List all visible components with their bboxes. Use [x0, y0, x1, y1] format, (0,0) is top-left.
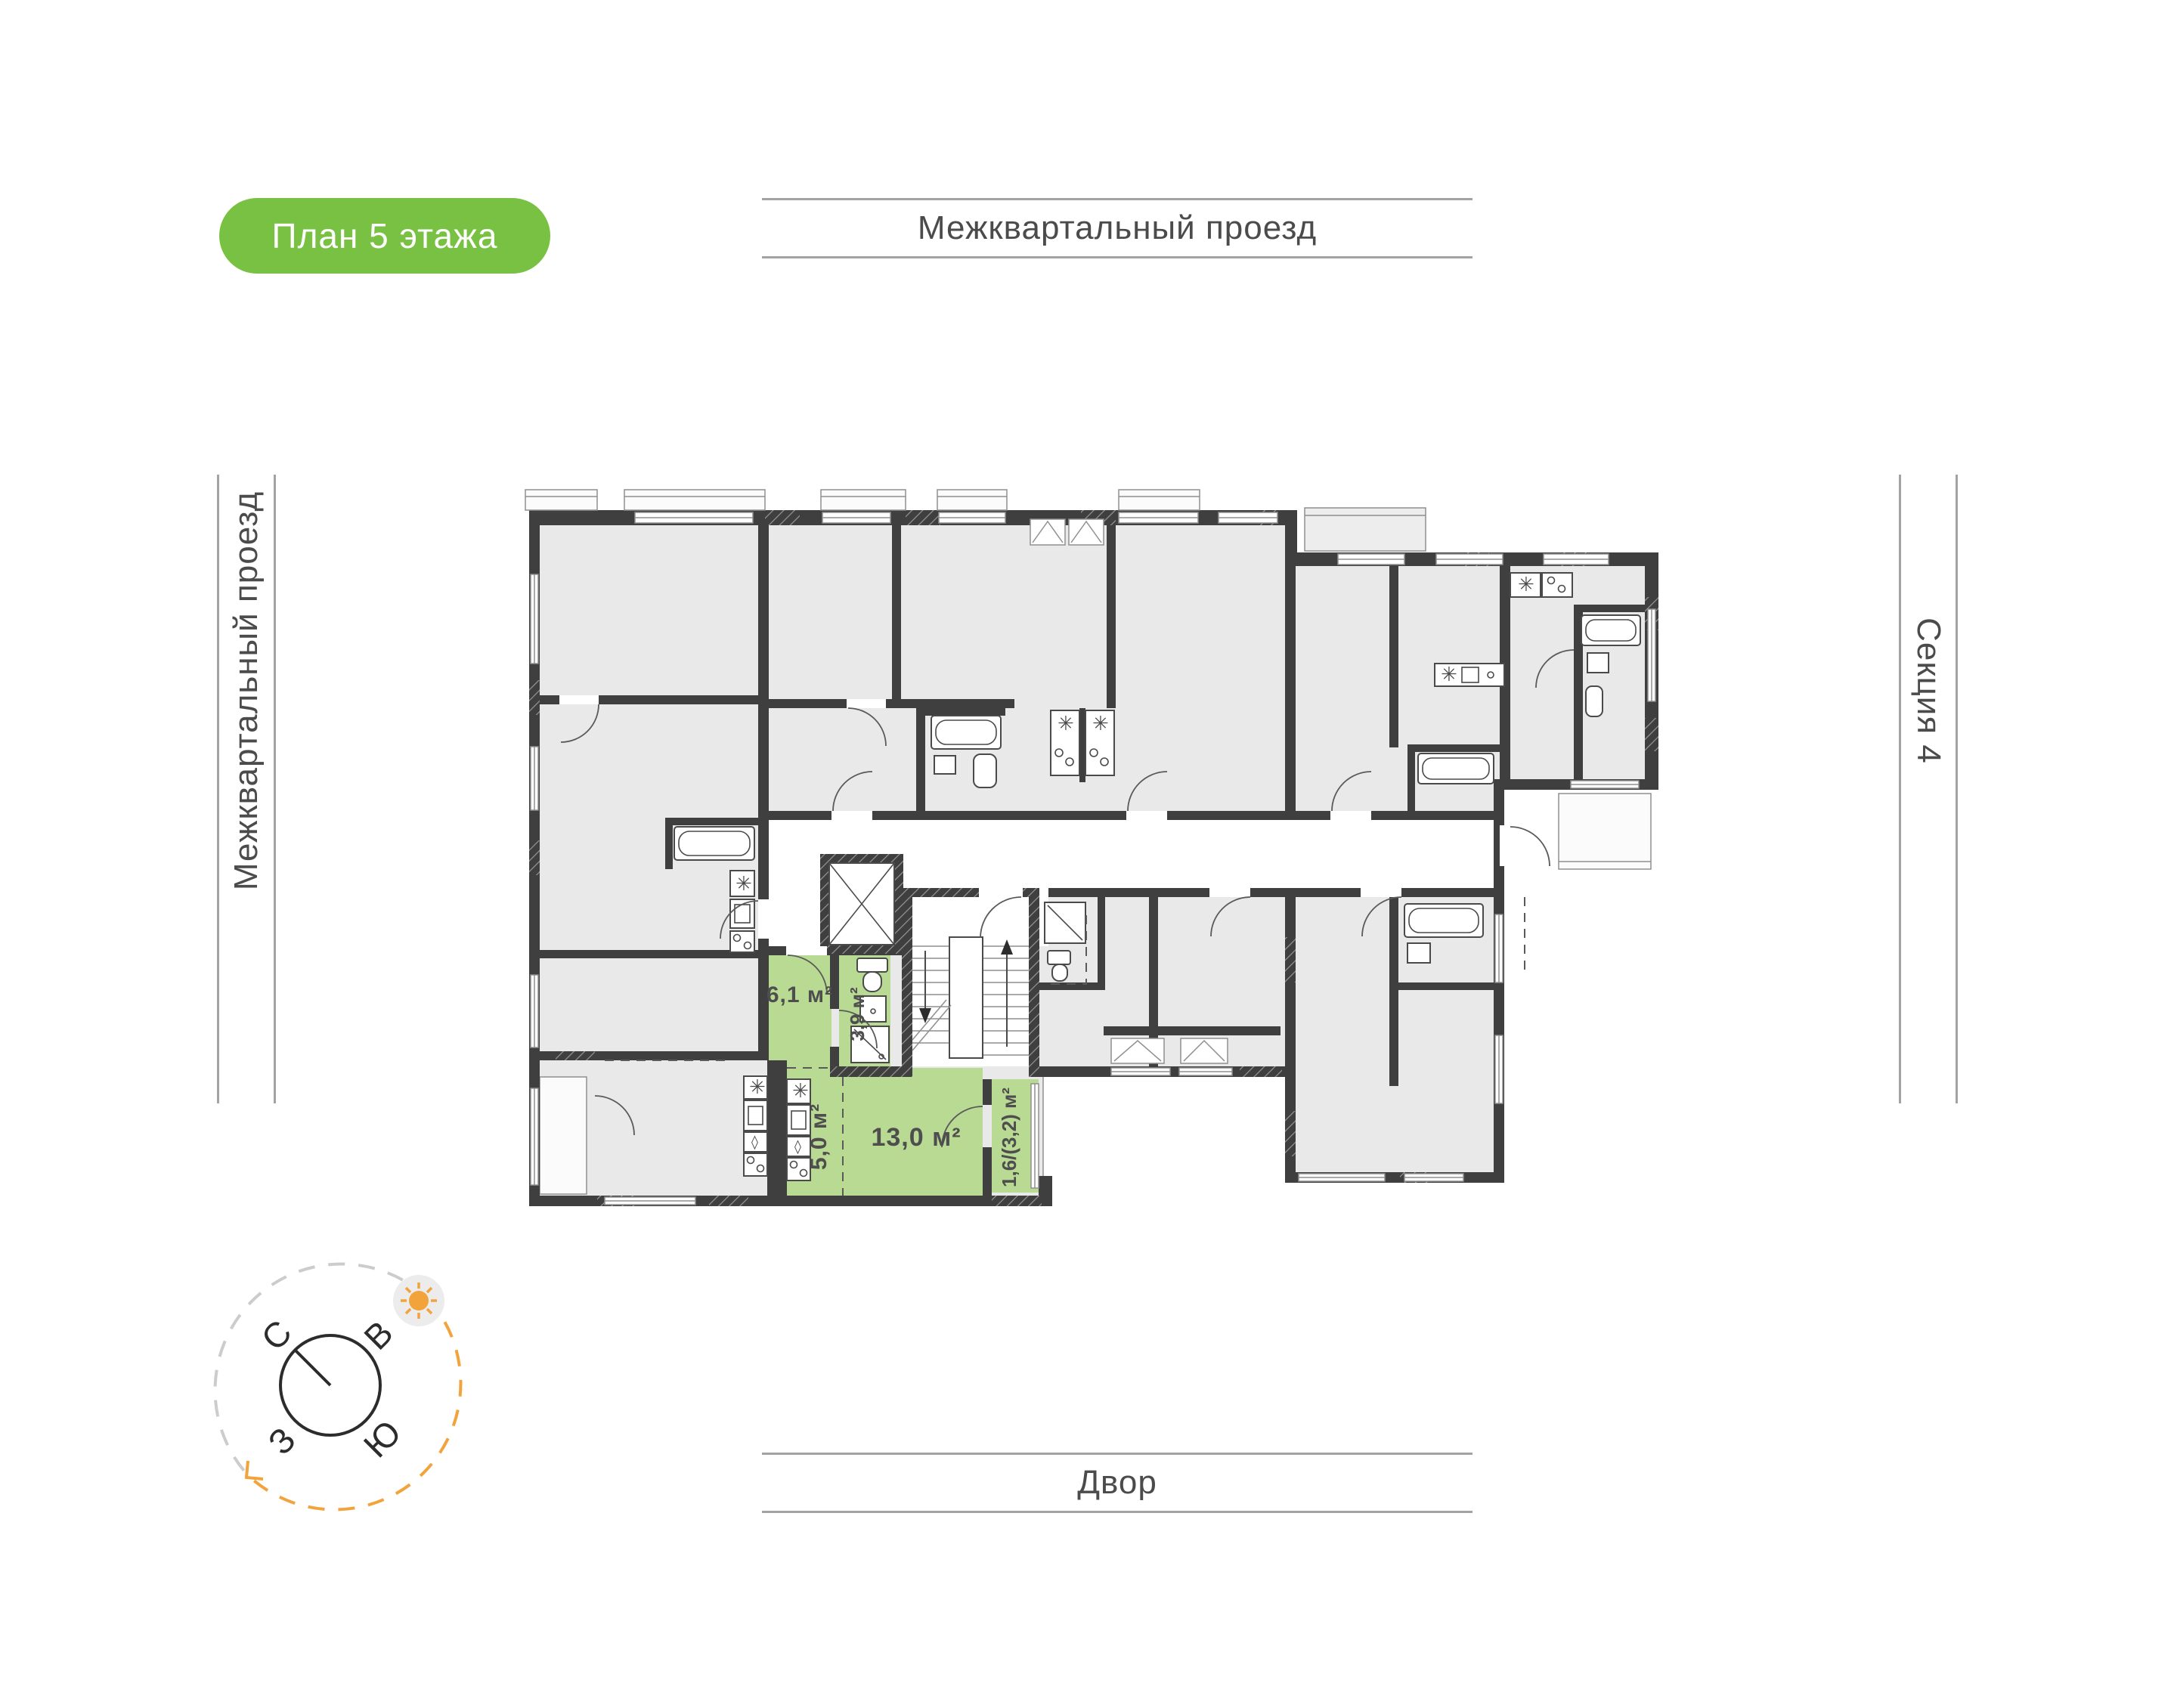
floor-plan: ✳ ◊ ✳ ◊ ✳ ✳✳	[522, 484, 1686, 1224]
svg-text:✳: ✳	[1441, 664, 1457, 686]
floor-plan-svg: ✳ ◊ ✳ ◊ ✳ ✳✳	[522, 484, 1686, 1224]
svg-text:✳: ✳	[1092, 713, 1109, 735]
area-label-kitchen: 5,0 м²	[807, 1103, 831, 1170]
studio-balcony	[540, 1077, 587, 1194]
street-label-left: Межквартальный проезд	[217, 475, 276, 1103]
area-label-hallway: 6,1 м²	[766, 982, 833, 1007]
stair-stringer	[949, 937, 983, 1058]
floor-badge: План 5 этажа	[219, 198, 550, 274]
svg-text:◊: ◊	[794, 1139, 801, 1155]
compass: С В З Ю	[204, 1251, 476, 1538]
floor-badge-label: План 5 этажа	[272, 215, 498, 256]
svg-text:✳: ✳	[1058, 713, 1074, 735]
area-label-bathroom: 3,9 м²	[846, 987, 869, 1041]
sun-icon	[393, 1275, 444, 1326]
area-label-balcony: 1,6/(3,2) м²	[998, 1088, 1020, 1187]
kitchen-appliances-a1: ✳	[730, 871, 754, 952]
section-label-text: Секция 4	[1909, 617, 1947, 764]
svg-text:✳: ✳	[1518, 574, 1534, 596]
yard-label-text: Двор	[1077, 1464, 1157, 1502]
svg-text:✳: ✳	[735, 873, 752, 896]
elevator	[820, 854, 903, 954]
street-label-top: Межквартальный проезд	[762, 198, 1472, 258]
hallway-room[interactable]	[769, 955, 831, 1068]
svg-text:✳: ✳	[792, 1080, 809, 1103]
section-label: Секция 4	[1899, 475, 1958, 1103]
svg-text:✳: ✳	[749, 1076, 766, 1099]
kitchen-appliances-a4: ✳	[1435, 664, 1504, 686]
compass-west-label: З	[260, 1419, 302, 1462]
area-label-living-room: 13,0 м²	[871, 1123, 961, 1152]
compass-svg: С В З Ю	[204, 1251, 476, 1538]
bathtub-icon-a1	[674, 827, 754, 860]
compass-arrow-icon	[246, 1461, 263, 1479]
street-label-left-text: Межквартальный проезд	[228, 491, 265, 890]
right-wing-balcony	[1559, 794, 1651, 869]
page: { "badge": { "label": "План 5 этажа", "c…	[0, 0, 2177, 1708]
top-right-loggia	[1305, 508, 1426, 551]
svg-text:◊: ◊	[751, 1134, 758, 1150]
street-label-top-text: Межквартальный проезд	[918, 209, 1317, 247]
bathtub-icon-a4	[1418, 753, 1494, 784]
yard-label: Двор	[762, 1453, 1472, 1513]
kitchen-appliances-studio: ✳ ◊	[744, 1076, 767, 1176]
